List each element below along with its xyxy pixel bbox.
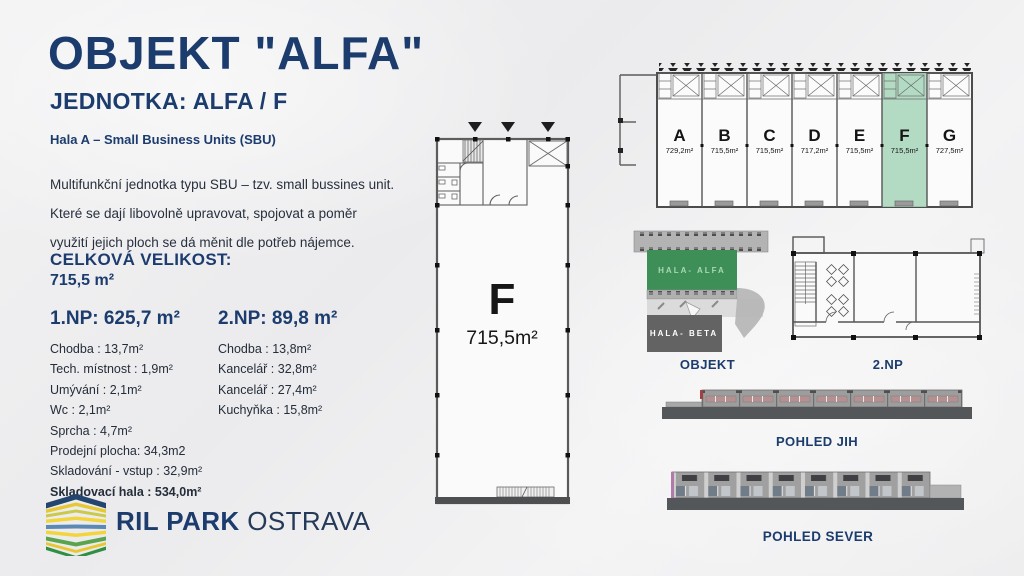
floor-outline bbox=[793, 253, 980, 337]
west-wing-elevation bbox=[666, 402, 702, 407]
np1-room-row: Skladování - vstup : 32,9m² bbox=[50, 461, 215, 481]
logo-brand: RIL PARK bbox=[116, 506, 240, 536]
stairs bbox=[463, 140, 483, 162]
site-plan: HALA- ALFA HALA- BETA bbox=[630, 228, 785, 356]
hall-unit-letter: A bbox=[673, 126, 685, 145]
hall-unit-letter: G bbox=[943, 126, 956, 145]
hall-unit-letter: D bbox=[808, 126, 820, 145]
hall-unit-letter: C bbox=[763, 126, 775, 145]
total-size-label: CELKOVÁ VELIKOST: bbox=[50, 250, 232, 270]
np1-room-list: 1.NP: 625,7 m² Chodba : 13,7m² Tech. mís… bbox=[50, 308, 215, 502]
unit-letter-label: F bbox=[489, 275, 516, 324]
np2-room-list: 2.NP: 89,8 m² Chodba : 13,8m² Kancelář :… bbox=[218, 308, 388, 421]
ril-park-logo-icon bbox=[46, 492, 106, 556]
south-elevation bbox=[656, 388, 978, 422]
site-plan-caption: OBJEKT bbox=[630, 357, 785, 372]
unit-area-label: 715,5m² bbox=[466, 327, 538, 349]
logo-wordmark: RIL PARK OSTRAVA bbox=[116, 506, 370, 537]
hall-unit-letter: F bbox=[899, 126, 909, 145]
np2-room-row: Kuchyňka : 15,8m² bbox=[218, 400, 388, 420]
second-floor-plan bbox=[788, 234, 988, 346]
np1-room-row: Chodba : 13,7m² bbox=[50, 339, 215, 359]
hall-unit-letter: E bbox=[854, 126, 865, 145]
corner-accent bbox=[671, 472, 674, 498]
page-title: OBJEKT "ALFA" bbox=[48, 26, 424, 80]
column-ticks bbox=[649, 291, 735, 295]
np2-title: 2.NP: 89,8 m² bbox=[218, 308, 388, 330]
np1-room-row: Umývání : 2,1m² bbox=[50, 380, 215, 400]
second-floor-caption: 2.NP bbox=[788, 357, 988, 372]
np1-room-row: Sprcha : 4,7m² bbox=[50, 421, 215, 441]
entrance-marker-icon bbox=[501, 122, 515, 132]
south-wall bbox=[435, 497, 570, 504]
hall-unit-area: 717,2m² bbox=[801, 146, 829, 155]
ground-base bbox=[667, 498, 964, 510]
hall-unit-area: 727,5m² bbox=[936, 146, 964, 155]
facade bbox=[702, 390, 962, 407]
unit-f-floorplan: F 715,5m² bbox=[430, 116, 575, 508]
entrance-marker-icon bbox=[468, 122, 482, 132]
page-subtitle: JEDNOTKA: ALFA / F bbox=[50, 88, 288, 115]
hall-unit-area: 715,5m² bbox=[891, 146, 919, 155]
total-size-value: 715,5 m² bbox=[50, 272, 114, 290]
roof-stub bbox=[971, 239, 984, 253]
ground-base bbox=[662, 407, 972, 419]
description-text: Multifunkční jednotka typu SBU – tzv. sm… bbox=[50, 170, 398, 257]
west-yard-walls bbox=[618, 75, 657, 165]
np1-room-row: Tech. místnost : 1,9m² bbox=[50, 359, 215, 379]
entrance-markers-row bbox=[659, 63, 971, 71]
logo-city: OSTRAVA bbox=[247, 506, 370, 536]
brochure-page: OBJEKT "ALFA" JEDNOTKA: ALFA / F Hala A … bbox=[0, 0, 1024, 576]
south-elevation-caption: POHLED JIH bbox=[656, 434, 978, 449]
corner-accent bbox=[700, 390, 703, 399]
column-ticks bbox=[636, 232, 766, 236]
north-elevation-caption: POHLED SEVER bbox=[658, 529, 978, 544]
north-elevation bbox=[658, 468, 978, 514]
np1-title: 1.NP: 625,7 m² bbox=[50, 308, 215, 330]
hall-unit-letter: B bbox=[718, 126, 730, 145]
np2-room-row: Kancelář : 32,8m² bbox=[218, 359, 388, 379]
hala-alfa-label: HALA- ALFA bbox=[658, 266, 726, 275]
loading-dock bbox=[497, 487, 554, 497]
np1-room-row: Wc : 2,1m² bbox=[50, 400, 215, 420]
stair-tower bbox=[793, 237, 824, 253]
entrance-marker-icon bbox=[541, 122, 555, 132]
np2-room-row: Kancelář : 27,4m² bbox=[218, 380, 388, 400]
hall-unit-area: 715,5m² bbox=[711, 146, 739, 155]
np2-room-row: Chodba : 13,8m² bbox=[218, 339, 388, 359]
east-wing-elevation bbox=[930, 485, 961, 498]
section-label: Hala A – Small Business Units (SBU) bbox=[50, 132, 276, 147]
hall-unit-area: 715,5m² bbox=[846, 146, 874, 155]
hala-beta-label: HALA- BETA bbox=[650, 329, 718, 338]
access-road bbox=[735, 288, 765, 338]
hall-unit-area: 715,5m² bbox=[756, 146, 784, 155]
facade bbox=[672, 472, 930, 498]
hall-a-overview-plan: A 729,2m² B 715,5m² C 715,5m² D 717,2m² … bbox=[610, 60, 975, 210]
np1-room-row: Prodejní plocha: 34,3m2 bbox=[50, 441, 215, 461]
hall-unit-area: 729,2m² bbox=[666, 146, 694, 155]
